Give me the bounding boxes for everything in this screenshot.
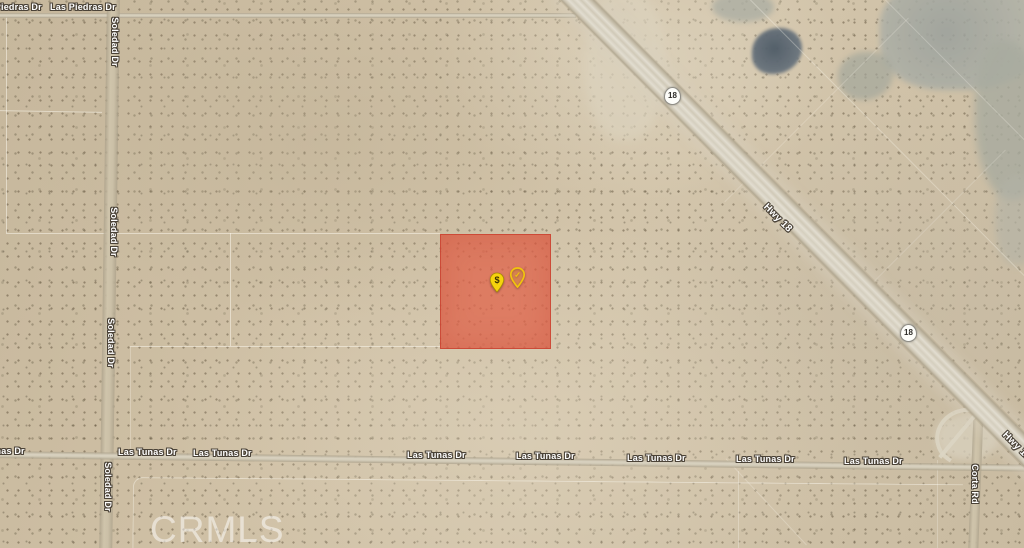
route-18-shield-icon: 18: [900, 324, 917, 342]
road-label-las-tunas: Las Tunas Dr: [736, 454, 795, 464]
road-label-las-tunas: Las Tunas Dr: [193, 448, 252, 458]
price-pin[interactable]: $: [489, 272, 505, 293]
parcel-boundary-line: [937, 460, 938, 548]
parcel-boundary-line: [230, 233, 231, 346]
road-label-las-piedras: Las Piedras Dr: [50, 2, 116, 12]
road-label-las-tunas: Las Tunas Dr: [627, 453, 686, 463]
satellite-map[interactable]: $ ✓ 18 18 Las Piedras Dr Las Piedras Dr …: [0, 0, 1024, 548]
road-label-soledad: Soledad Dr: [110, 15, 120, 69]
parcel-boundary-line: [130, 347, 131, 452]
road-label-soledad: Soledad Dr: [106, 316, 116, 370]
parcel-boundary-line: [6, 16, 7, 233]
road-label-las-tunas: Las Tunas Dr: [844, 456, 903, 466]
parcel-boundary-line: [6, 233, 440, 234]
parcel-boundary-line: [130, 346, 440, 347]
route-18-shield-icon: 18: [664, 87, 681, 105]
road-label-soledad: Soledad Dr: [109, 205, 119, 259]
check-pin[interactable]: ✓: [509, 267, 526, 288]
crmls-watermark: CRMLS: [150, 509, 285, 548]
road-label-las-tunas: Las Tunas Dr: [407, 450, 466, 460]
road-label-las-tunas: Las Tunas Dr: [516, 451, 575, 461]
road-label-las-piedras: Las Piedras Dr: [0, 2, 42, 12]
price-pin-glyph: $: [494, 275, 499, 285]
parcel-boundary-line: [738, 471, 739, 548]
road-label-las-tunas: Las Tunas Dr: [118, 447, 177, 457]
las-piedras-road: [0, 13, 576, 18]
road-label-soledad: Soledad Dr: [103, 460, 113, 514]
road-label-corta: Corta Rd: [970, 460, 980, 508]
road-label-las-tunas: Las Tunas Dr: [0, 446, 25, 456]
check-pin-glyph: ✓: [514, 271, 521, 280]
